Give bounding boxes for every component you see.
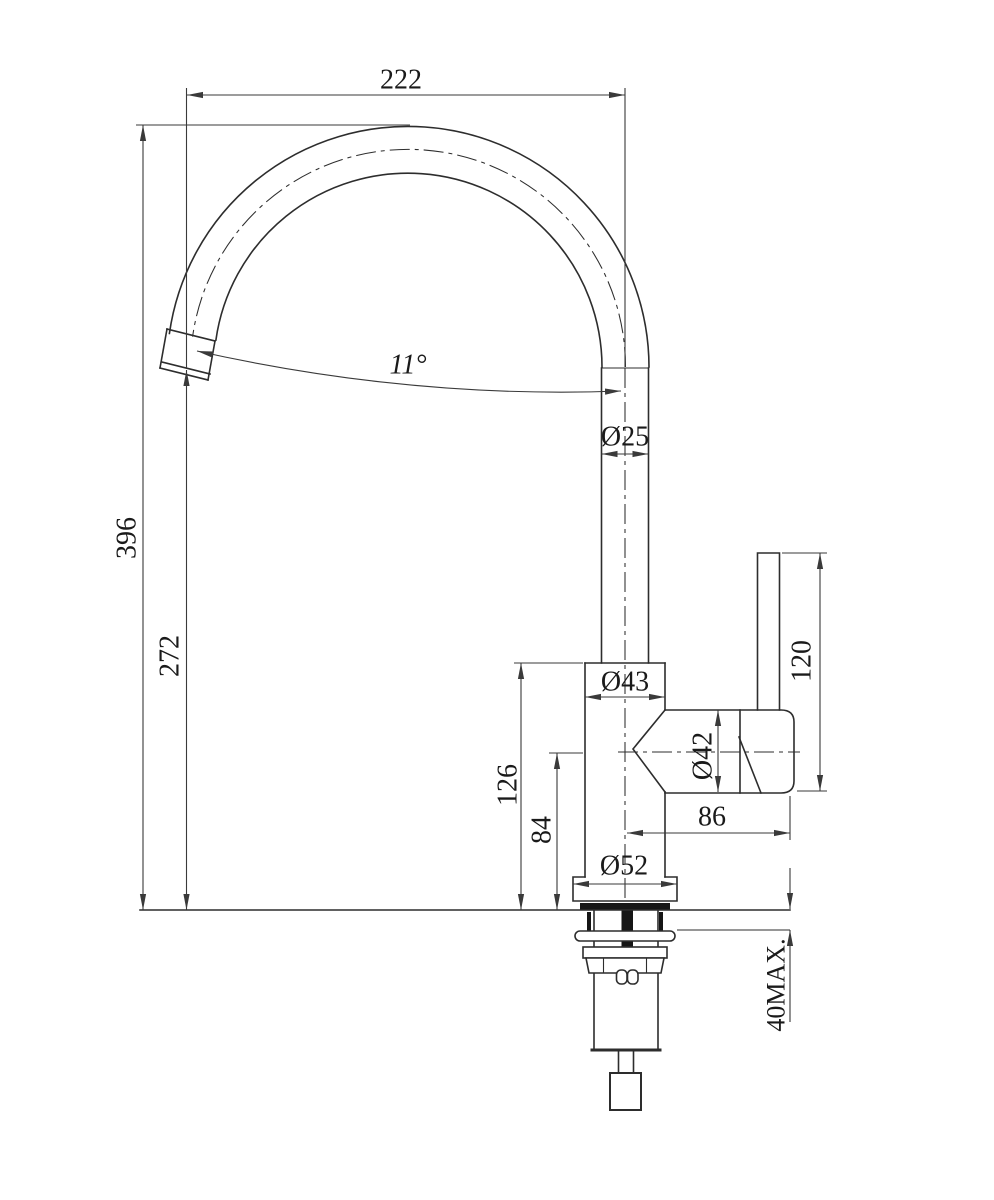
label-base-diameter: Ø52 bbox=[600, 851, 648, 882]
technical-drawing-sheet: 222 11° Ø25 396 272 Ø43 Ø42 120 126 84 8… bbox=[0, 0, 994, 1200]
spout-inner-arc bbox=[216, 173, 602, 367]
label-spout-reach: 222 bbox=[380, 65, 422, 96]
spout-gooseneck bbox=[169, 126, 649, 368]
extension-lines bbox=[136, 88, 827, 840]
base-gasket-plate bbox=[580, 903, 670, 910]
faucet-drawing-canvas: 222 11° Ø25 396 272 Ø43 Ø42 120 126 84 8… bbox=[0, 0, 994, 1200]
mounting-nut-upper bbox=[583, 947, 667, 958]
supply-connector-block bbox=[610, 1073, 641, 1110]
label-handle-reach: 86 bbox=[698, 802, 726, 833]
label-body-diameter: Ø43 bbox=[601, 667, 649, 698]
cap-diagonal-line bbox=[739, 737, 761, 793]
cone-transition bbox=[633, 710, 665, 792]
label-handle-height: 120 bbox=[787, 640, 818, 682]
label-tube-diameter: Ø25 bbox=[601, 422, 649, 453]
label-outlet-height: 272 bbox=[155, 635, 186, 677]
handle-lever-rod bbox=[758, 553, 780, 710]
mounting-washer bbox=[575, 931, 675, 941]
dimension-lines bbox=[143, 95, 820, 1022]
label-max-deck-thickness: 40MAX. bbox=[762, 938, 791, 1031]
label-side-axis-height: 84 bbox=[527, 816, 558, 844]
spout-outer-arc bbox=[169, 126, 649, 367]
stud-fork-left bbox=[617, 970, 628, 984]
aerator-outlet-face bbox=[160, 368, 208, 380]
label-spout-angle: 11° bbox=[389, 350, 426, 381]
label-total-height: 396 bbox=[112, 517, 143, 559]
aerator-band-upper bbox=[167, 329, 215, 341]
connector-stem bbox=[619, 1051, 634, 1073]
spout-aerator-tip bbox=[160, 329, 215, 380]
spout-centerline-arc bbox=[193, 149, 626, 367]
dimension-labels: 222 11° Ø25 396 272 Ø43 Ø42 120 126 84 8… bbox=[112, 65, 818, 1032]
label-cartridge-diameter: Ø42 bbox=[688, 732, 719, 780]
under-counter-assembly bbox=[575, 910, 675, 1110]
stud-fork-right bbox=[628, 970, 639, 984]
label-body-height: 126 bbox=[493, 764, 524, 806]
